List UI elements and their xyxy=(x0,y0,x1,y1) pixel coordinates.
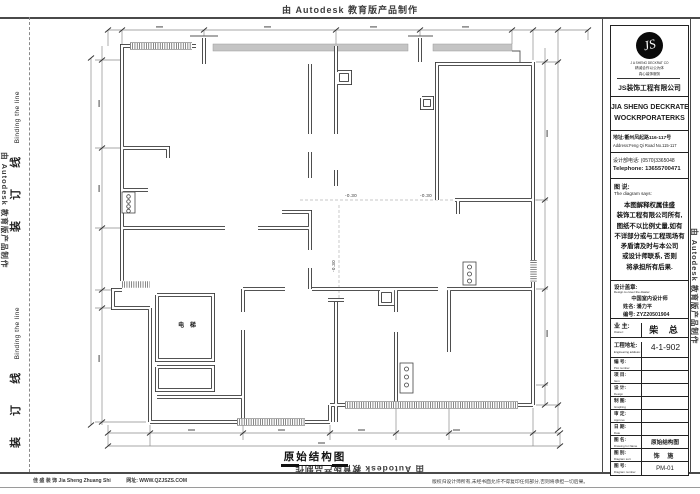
company-name-cn: JS装饰工程有限公司 xyxy=(611,82,688,92)
designer-name: 姓名: 潘力平 xyxy=(623,303,652,310)
level-label-2: -0.30 xyxy=(420,193,432,198)
info-rows: 编 号: Plot number 项 目: Item 设 计: Design 制… xyxy=(611,358,688,475)
level-label-1: -0.30 xyxy=(345,193,357,198)
designer-title: 中国室内设计师 xyxy=(611,295,688,302)
disclaimer-line: 或设计师联系, 否则 xyxy=(611,252,688,262)
phone-section: 设计部电话: (0570)3365048 Telephone: 13655700… xyxy=(611,153,688,179)
elevator-label: 电 梯 xyxy=(170,320,206,329)
company-logo: JS xyxy=(636,32,663,59)
company-name-en-2: WOCKRPORATERKS xyxy=(611,115,688,122)
footer-company-name: 佳 盛 装 饰 Jia Sheng Zhuang Shi xyxy=(33,478,111,484)
row-drawing-number: 图 号: Diagram number PM-01 xyxy=(611,462,688,475)
footer-copyright: 版权归设计师所有,未经书面允许不得复印任何部分,否则将承担一切后果。 xyxy=(432,478,588,485)
row-label: 项 目: xyxy=(614,372,626,378)
plan-title: 原始结构图 xyxy=(250,449,380,464)
row-label-en: Approve xyxy=(614,418,625,422)
row-label-en: Date xyxy=(614,431,620,435)
logo-monogram: JS xyxy=(634,34,664,56)
says-label-cn: 图 说: xyxy=(614,182,630,191)
footer-website: 网址: WWW.QZJSZS.COM xyxy=(126,478,187,484)
plan-title-underline-mid xyxy=(299,465,332,466)
seal-label-en: Design to cover the diaster xyxy=(614,290,650,294)
dimension-numbers xyxy=(99,26,548,443)
title-block: JS J A SHENG DECKRAT CO 精诚合作以公为体 真心装饰服务 … xyxy=(610,25,689,476)
row-label-en: Design xyxy=(614,392,623,396)
row-label-en: Diagram number xyxy=(614,470,636,474)
phone-cn: 设计部电话: (0570)3365048 xyxy=(613,157,675,164)
disclaimer-line: 图纸不以比例丈量,如有 xyxy=(611,222,688,232)
disclaimer-line: 矛盾请及时与本公司 xyxy=(611,242,688,252)
owner-label-cn: 业 主: xyxy=(614,321,630,330)
row-value xyxy=(641,384,688,396)
disclaimer-line: 不详部分或与工程现场有 xyxy=(611,232,688,242)
disclaimer-line: 装饰工程有限公司所有, xyxy=(611,211,688,221)
owner-row: 业 主: Owner: 柴 总 xyxy=(611,319,688,338)
row-label: 图 别: xyxy=(614,450,626,456)
company-name-en-1: JIA SHENG DECKRATE xyxy=(611,104,688,111)
datum-lines xyxy=(300,200,540,300)
gray-band xyxy=(213,44,512,51)
row-label-en: Drawing for Name xyxy=(614,444,637,448)
site-label-en: Engineering address: xyxy=(614,350,640,354)
row-label: 制 图: xyxy=(614,398,626,404)
logo-divider xyxy=(617,78,680,79)
company-en-section: JIA SHENG DECKRATE WOCKRPORATERKS xyxy=(611,97,688,131)
address-cn: 地址:衢州凤起路116-117号 xyxy=(613,134,671,141)
row-value xyxy=(641,410,688,422)
row-value xyxy=(641,371,688,383)
owner-label-en: Owner: xyxy=(614,330,624,334)
row-label: 审 定: xyxy=(614,411,626,417)
says-label-en: The diagram says: xyxy=(614,191,652,196)
row-label-en: Graphing xyxy=(614,405,626,409)
dimension-lines xyxy=(91,30,588,446)
design-seal-section: 设计盖章: Design to cover the diaster 中国室内设计… xyxy=(611,281,688,319)
disclaimer-text: 本图解释权属佳盛 装饰工程有限公司所有, 图纸不以比例丈量,如有 不详部分或与工… xyxy=(611,201,688,273)
row-label: 图 名: xyxy=(614,437,626,443)
site-row: 工程地址: Engineering address: 4-1-902 xyxy=(611,338,688,358)
row-design: 设 计: Design xyxy=(611,384,688,397)
row-label: 图 号: xyxy=(614,463,626,469)
row-value: 原始结构图 xyxy=(641,436,688,448)
row-value: PM-01 xyxy=(641,462,688,475)
row-plot-number: 编 号: Plot number xyxy=(611,358,688,371)
row-drawing-sort: 图 别: Diagram sort 饰 施 xyxy=(611,449,688,462)
row-graphing: 制 图: Graphing xyxy=(611,397,688,410)
logo-subtext-1: J A SHENG DECKRAT CO xyxy=(611,61,688,65)
row-item: 项 目: Item xyxy=(611,371,688,384)
floor-plan-drawing xyxy=(0,0,700,494)
footer-company: 佳 盛 装 饰 Jia Sheng Zhuang Shi 网址: WWW.QZJ… xyxy=(33,477,187,484)
row-label: 日 期: xyxy=(614,424,626,430)
row-value xyxy=(641,397,688,409)
walls xyxy=(113,38,533,422)
row-approve: 审 定: Approve xyxy=(611,410,688,423)
site-value: 4-1-902 xyxy=(641,342,688,358)
row-value: 饰 施 xyxy=(641,449,688,461)
row-label: 设 计: xyxy=(614,385,626,391)
row-drawing-name: 图 名: Drawing for Name 原始结构图 xyxy=(611,436,688,449)
row-value xyxy=(641,358,688,370)
logo-subtext-2: 精诚合作以公为体 xyxy=(611,66,688,71)
logo-section: JS J A SHENG DECKRAT CO 精诚合作以公为体 真心装饰服务 … xyxy=(611,26,688,97)
logo-subtext-3: 真心装饰服务 xyxy=(611,72,688,77)
row-date: 日 期: Date xyxy=(611,423,688,436)
phone-en: Telephone: 13655700471 xyxy=(613,166,681,172)
disclaimer-line: 将承担所有后果. xyxy=(611,263,688,273)
row-label: 编 号: xyxy=(614,359,626,365)
site-label-cn: 工程地址: xyxy=(614,341,637,349)
plan-title-underline-right xyxy=(332,464,348,467)
row-label-en: Plot number xyxy=(614,366,630,370)
row-value xyxy=(641,423,688,435)
disclaimer-line: 本图解释权属佳盛 xyxy=(611,201,688,211)
row-label-en: Item xyxy=(614,379,620,383)
owner-value: 柴 总 xyxy=(641,323,688,338)
level-label-3: -0.30 xyxy=(331,260,336,272)
address-en: Address:Feng Qi Road No.115-117 xyxy=(613,143,677,148)
address-section: 地址:衢州凤起路116-117号 Address:Feng Qi Road No… xyxy=(611,131,688,153)
diagram-says-section: 图 说: The diagram says: 本图解释权属佳盛 装饰工程有限公司… xyxy=(611,179,688,281)
designer-number: 编号: ZYZ20501904 xyxy=(623,311,669,318)
plan-title-underline-left xyxy=(281,464,299,467)
fixtures xyxy=(122,192,476,393)
row-label-en: Diagram sort xyxy=(614,457,631,461)
dimension-ticks xyxy=(88,28,591,449)
